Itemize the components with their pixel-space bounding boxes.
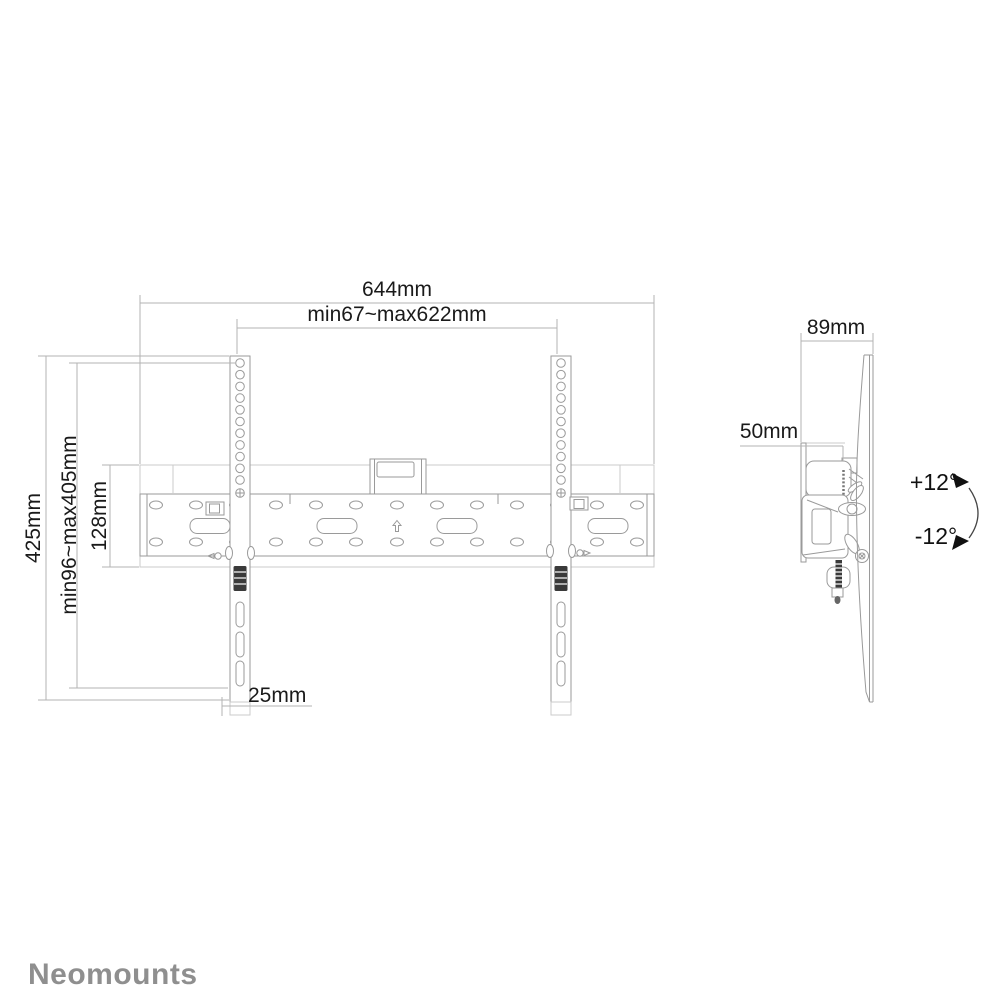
dim-width-range: min67~max622mm: [237, 303, 557, 354]
wall-mount-diagram: 644mm min67~max622mm 425mm min96~max405m…: [0, 0, 1004, 1004]
label-height-total: 425mm: [22, 493, 45, 563]
dim-wall-offset: 50mm: [740, 420, 843, 461]
screw-cross-icon: [236, 489, 245, 498]
front-view: 644mm min67~max622mm 425mm min96~max405m…: [22, 278, 654, 716]
side-view: 89mm 50mm +12° -12°: [740, 316, 978, 702]
side-tv-panel: [856, 355, 873, 702]
label-width-range: min67~max622mm: [307, 303, 486, 326]
label-height-range: min96~max405mm: [58, 435, 81, 614]
label-plate-height: 128mm: [88, 481, 111, 551]
safety-bolt: [827, 560, 850, 604]
brand-logo: Neomounts: [28, 958, 198, 991]
tilt-arc: [969, 488, 978, 538]
rail-clamp-left: [206, 502, 224, 515]
label-wall-offset: 50mm: [740, 420, 798, 443]
rail-clamp-right: [570, 497, 588, 510]
scale-sticker-right: [555, 566, 568, 591]
scale-sticker-left: [234, 566, 247, 591]
dim-plate-height: 128mm: [88, 465, 139, 567]
tilt-annotation: +12° -12°: [910, 469, 978, 550]
label-tilt-up: +12°: [910, 469, 958, 495]
technical-drawing-page: 644mm min67~max622mm 425mm min96~max405m…: [0, 0, 1004, 1004]
label-width-total: 644mm: [362, 278, 432, 301]
label-bracket-width: 25mm: [248, 684, 306, 707]
center-tab: [370, 459, 426, 494]
label-tilt-down: -12°: [915, 523, 957, 549]
label-depth: 89mm: [807, 316, 865, 339]
screw-cross-icon: [557, 489, 566, 498]
